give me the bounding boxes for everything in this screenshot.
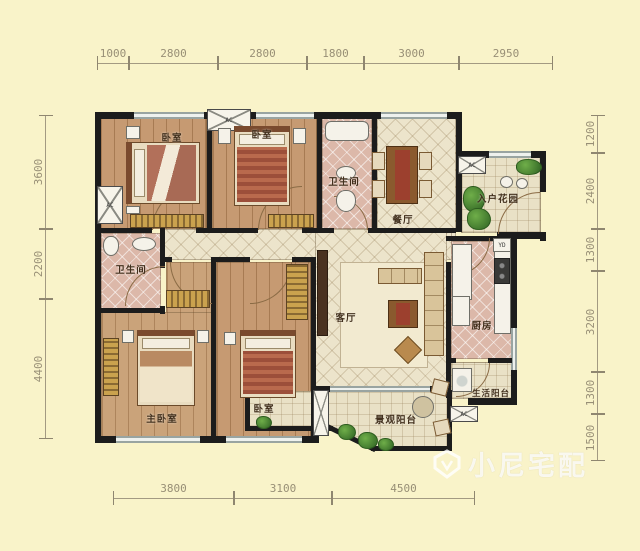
- coffee-table-icon: [388, 300, 418, 328]
- chair-icon: [372, 152, 385, 170]
- wall: [468, 398, 517, 405]
- kitchen-sink-icon: [452, 296, 470, 326]
- window: [256, 112, 314, 119]
- room-label-view-balcony: 景观阳台: [375, 412, 417, 426]
- dim-bottom-1: 3100: [234, 484, 332, 499]
- watermark: 小尼宅配: [432, 444, 588, 483]
- bed-icon: [240, 330, 296, 398]
- wall: [488, 358, 512, 363]
- wall: [95, 308, 165, 313]
- wall: [511, 237, 517, 405]
- wall: [302, 228, 334, 233]
- plant-icon: [378, 438, 394, 451]
- wall: [446, 358, 456, 363]
- ac-label: AC: [225, 117, 232, 124]
- wardrobe-icon: [130, 214, 204, 228]
- window: [226, 436, 302, 443]
- ac-label: AC: [460, 411, 467, 418]
- dim-value: 1300: [584, 380, 597, 407]
- room-label-kitchen: 厨房: [471, 318, 492, 332]
- plant-icon: [358, 432, 378, 449]
- dim-top-0: 1000: [97, 49, 129, 64]
- wall: [311, 257, 316, 392]
- dim-value: 4400: [32, 356, 45, 383]
- watermark-logo-icon: [432, 449, 462, 479]
- dim-value: 3000: [398, 47, 425, 60]
- dim-value: 2200: [32, 251, 45, 278]
- bed-icon: [126, 142, 200, 204]
- wall: [317, 112, 322, 233]
- room-label-bath-2: 卫生间: [115, 262, 147, 276]
- toilet-icon: [103, 236, 119, 256]
- ac-unit: AC: [450, 406, 478, 422]
- wall: [196, 228, 258, 233]
- nightstand-icon: [293, 128, 306, 144]
- window: [116, 436, 200, 443]
- wall: [372, 112, 377, 233]
- dim-top-2: 2800: [218, 49, 307, 64]
- dim-value: 3600: [32, 159, 45, 186]
- counter-icon: [452, 244, 472, 300]
- dining-table-icon: [386, 146, 418, 204]
- dim-top-3: 1800: [307, 49, 364, 64]
- wardrobe-icon: [286, 264, 308, 320]
- washer-icon: [452, 368, 472, 392]
- floorplan-canvas: AC AC AC AC YD: [0, 0, 640, 551]
- nightstand-icon: [197, 330, 209, 343]
- dim-left-1: 2200: [45, 229, 60, 299]
- ac-label: AC: [468, 162, 475, 169]
- window: [381, 112, 447, 119]
- dim-value: 3200: [584, 308, 597, 335]
- chair-icon: [372, 180, 385, 198]
- nightstand-icon: [224, 332, 236, 345]
- sofa-icon: [424, 252, 444, 356]
- wardrobe-icon: [166, 290, 210, 308]
- wardrobe-icon: [103, 338, 119, 396]
- dim-right-4: 1300: [597, 372, 612, 414]
- room-label-entry-garden: 入户花园: [477, 191, 519, 205]
- dim-value: 3100: [270, 482, 297, 495]
- bed-icon: [137, 330, 195, 406]
- watermark-text: 小尼宅配: [468, 444, 588, 483]
- dim-value: 3800: [160, 482, 187, 495]
- wall: [95, 228, 152, 233]
- dim-right-2: 1300: [597, 229, 612, 271]
- dim-right-0: 1200: [597, 115, 612, 153]
- dim-value: 2800: [160, 47, 187, 60]
- plant-icon: [256, 416, 272, 429]
- room-label-living: 客厅: [335, 310, 356, 324]
- planter-pot-icon: [516, 178, 528, 189]
- dim-top-4: 3000: [364, 49, 459, 64]
- dim-right-5: 1500: [597, 414, 612, 461]
- ac-unit: AC: [97, 186, 123, 224]
- planter-pot-icon: [500, 176, 513, 188]
- dim-value: 2950: [493, 47, 520, 60]
- plant-icon: [467, 208, 491, 230]
- room-label-dining: 餐厅: [392, 212, 413, 226]
- nightstand-icon: [122, 330, 134, 343]
- dim-right-3: 3200: [597, 271, 612, 372]
- wardrobe-icon: [268, 214, 314, 228]
- dim-value: 4500: [390, 482, 417, 495]
- fridge-label: YD: [498, 242, 505, 249]
- dim-left-0: 3600: [45, 115, 60, 229]
- room-label-bedroom-2: 卧室: [251, 127, 272, 141]
- window: [489, 151, 531, 158]
- chair-icon: [419, 180, 432, 198]
- dim-right-1: 2400: [597, 153, 612, 229]
- dim-value: 2800: [249, 47, 276, 60]
- wall: [160, 228, 165, 268]
- window: [511, 328, 517, 370]
- tv-cabinet-icon: [317, 250, 328, 336]
- toilet-icon: [336, 190, 356, 212]
- ac-label: AC: [106, 202, 113, 209]
- room-label-bedroom-1: 卧室: [161, 130, 182, 144]
- dim-value: 1800: [322, 47, 349, 60]
- dim-bottom-2: 4500: [332, 484, 475, 499]
- wall: [540, 151, 546, 192]
- nightstand-icon: [126, 126, 140, 139]
- dim-value: 1200: [584, 121, 597, 148]
- dim-value: 2400: [584, 178, 597, 205]
- dim-value: 1000: [100, 47, 127, 60]
- sink-icon: [132, 237, 156, 251]
- plant-icon: [338, 424, 356, 440]
- fridge-icon: YD: [493, 238, 511, 252]
- dim-value: 1300: [584, 237, 597, 264]
- wall: [368, 228, 456, 233]
- room-label-master-bedroom: 主卧室: [146, 411, 178, 425]
- wall: [95, 112, 101, 443]
- room-label-bedroom-3: 卧室: [253, 401, 274, 415]
- plant-icon: [516, 159, 542, 175]
- room-label-bath-1: 卫生间: [328, 174, 360, 188]
- wall: [446, 262, 451, 398]
- dim-left-2: 4400: [45, 299, 60, 439]
- dim-top-1: 2800: [129, 49, 218, 64]
- wall: [212, 257, 250, 262]
- ac-unit: AC: [458, 156, 486, 174]
- window: [134, 112, 204, 119]
- nightstand-icon: [218, 128, 231, 144]
- dim-top-5: 2950: [459, 49, 553, 64]
- bathtub-icon: [325, 121, 369, 141]
- dim-bottom-0: 3800: [113, 484, 234, 499]
- chair-icon: [419, 152, 432, 170]
- duct-shaft: [313, 390, 329, 436]
- window: [330, 386, 430, 392]
- nightstand-icon: [126, 206, 140, 214]
- stove-icon: [494, 258, 510, 284]
- sofa-icon: [378, 268, 422, 284]
- room-label-utility-balcony: 生活阳台: [472, 387, 510, 399]
